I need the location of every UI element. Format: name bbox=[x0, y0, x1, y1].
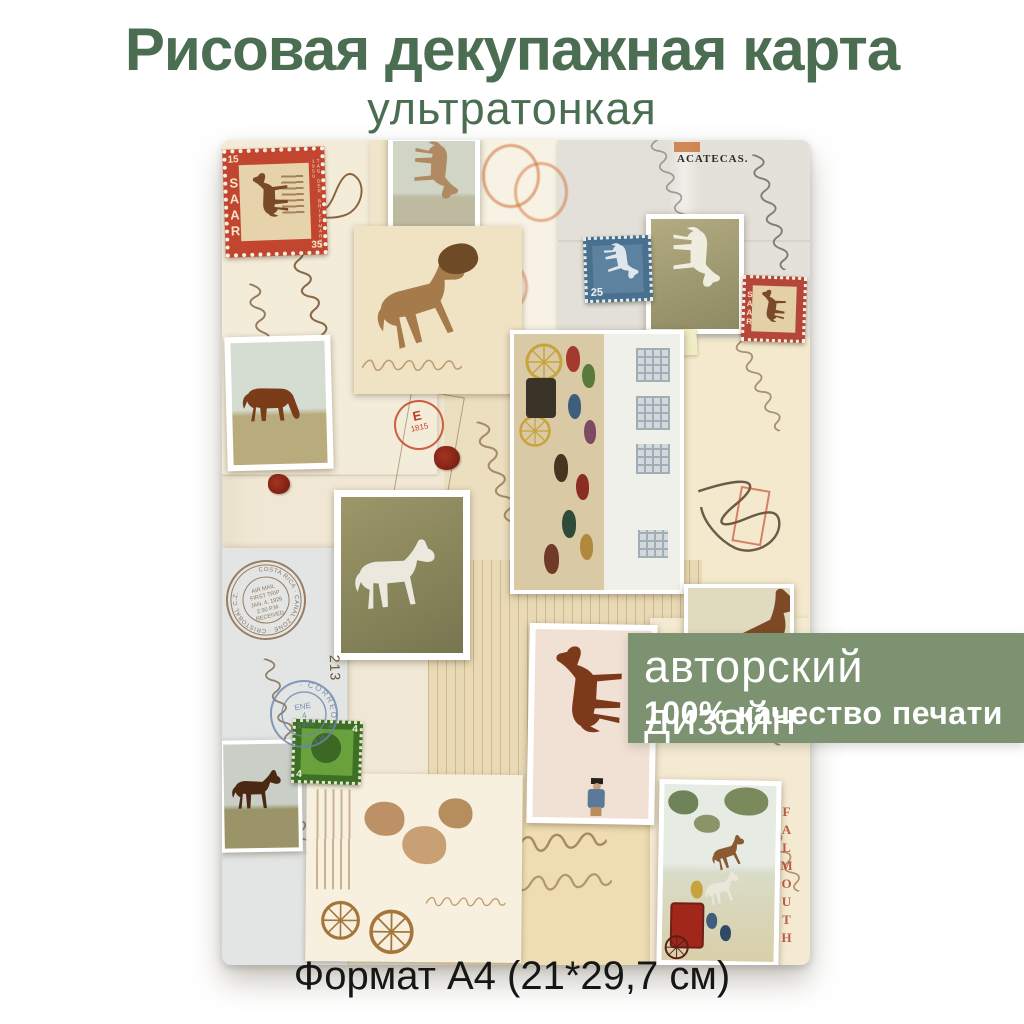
horse-icon bbox=[552, 629, 630, 738]
card-picture bbox=[223, 743, 299, 848]
promo-banner: авторский дизайн 100% качество печати bbox=[628, 633, 1024, 743]
stamp-value: 4 bbox=[352, 724, 358, 735]
wheel-icon bbox=[367, 908, 415, 956]
format-caption: Формат А4 (21*29,7 см) bbox=[0, 956, 1024, 996]
crowd-figure bbox=[544, 544, 559, 574]
stamp-value-left: 15 bbox=[227, 154, 239, 165]
stamp-value-2: 4 bbox=[296, 769, 302, 780]
building-window bbox=[636, 348, 670, 382]
saar-stamp: SAAR 15 35 TAG DER BRIEFMARKE 1950 bbox=[222, 146, 328, 257]
card-picture bbox=[393, 141, 475, 235]
horse-icon bbox=[700, 868, 752, 909]
horse-icon bbox=[759, 282, 790, 325]
horse-icon bbox=[670, 224, 721, 300]
crowd-figure bbox=[566, 346, 580, 372]
card-picture bbox=[230, 341, 327, 465]
handwritten-number: 213 bbox=[327, 655, 344, 682]
decoupage-sheet: ACATECAS. E 1815 bbox=[222, 140, 810, 965]
tree bbox=[694, 815, 720, 833]
svg-text:· CORREO AEREO ·: · CORREO AEREO · bbox=[281, 675, 343, 751]
sketch-lines bbox=[316, 789, 353, 889]
horse-icon bbox=[706, 831, 759, 875]
sepia-rider-drawing bbox=[354, 226, 522, 394]
wheel-icon bbox=[319, 899, 361, 941]
white-horse-card bbox=[646, 214, 744, 334]
horse-icon bbox=[600, 238, 641, 292]
sketch-squiggle bbox=[362, 356, 462, 376]
blue-stamp: 25 bbox=[583, 235, 653, 303]
grey-horse-card bbox=[334, 490, 470, 660]
tree bbox=[668, 790, 698, 815]
tree bbox=[724, 787, 768, 816]
card-picture bbox=[651, 219, 739, 329]
card-picture bbox=[661, 784, 776, 962]
page-title: Рисовая декупажная карта bbox=[0, 20, 1024, 80]
crowd-figure bbox=[554, 454, 568, 482]
horse-icon bbox=[360, 243, 503, 360]
horse-grazing-icon bbox=[239, 373, 320, 428]
horse-icon bbox=[410, 141, 460, 212]
wheel-icon bbox=[518, 414, 552, 448]
horse-icon bbox=[230, 769, 293, 811]
stamp-fragment bbox=[674, 142, 700, 152]
building-window bbox=[636, 396, 670, 430]
banner-line-2: 100% качество печати bbox=[644, 695, 1003, 732]
horse-icon bbox=[348, 536, 459, 616]
postilion-figure bbox=[691, 881, 703, 899]
card-picture bbox=[341, 497, 463, 653]
groom-coat bbox=[588, 789, 605, 808]
sketch-figure bbox=[438, 798, 472, 828]
wax-seal bbox=[268, 474, 290, 494]
sketch-figure bbox=[402, 826, 446, 864]
orange-postmark bbox=[514, 162, 568, 222]
product-image: Рисовая декупажная карта ультратонкая AC… bbox=[0, 0, 1024, 1024]
saar-stamp-small: SAAR bbox=[741, 275, 807, 343]
sketch-squiggle bbox=[426, 894, 506, 911]
sepia-cart-sketch bbox=[305, 773, 523, 963]
postmark-ring-text: · CORREO AEREO · bbox=[281, 675, 343, 751]
groom-legs bbox=[590, 807, 601, 816]
appaloosa-horse-card bbox=[388, 140, 480, 240]
building-window bbox=[636, 444, 670, 474]
coach-body bbox=[526, 378, 556, 418]
card-picture bbox=[514, 334, 680, 590]
building-window bbox=[638, 530, 668, 558]
wax-seal bbox=[434, 446, 460, 470]
crowd-figure bbox=[576, 474, 589, 500]
envelope-printed-text: ACATECAS. bbox=[677, 153, 748, 165]
stamp-picture bbox=[239, 163, 312, 241]
bay-horse-card bbox=[224, 335, 333, 472]
stamp-country: SAAR bbox=[744, 290, 754, 326]
stamp-edge-text: TAG DER BRIEFMARKE 1950 bbox=[311, 158, 324, 250]
crowd-figure bbox=[568, 394, 581, 419]
passenger-figure bbox=[720, 925, 731, 941]
mail-coach-card bbox=[656, 779, 781, 965]
stamp-picture bbox=[751, 285, 797, 333]
page-subtitle: ультратонкая bbox=[0, 86, 1024, 131]
correo-aereo-postmark: · CORREO AEREO · ENE 4 1920 bbox=[262, 672, 345, 755]
passenger-figure bbox=[706, 913, 717, 929]
wheel-icon bbox=[524, 342, 564, 382]
crowd-figure bbox=[584, 420, 596, 444]
stamp-value: 25 bbox=[591, 287, 604, 299]
stamp-country: SAAR bbox=[226, 175, 243, 239]
crowd-figure bbox=[562, 510, 576, 538]
coach-street-scene-card bbox=[510, 330, 684, 594]
crowd-figure bbox=[580, 534, 593, 560]
postmark-line: 1920 bbox=[296, 718, 316, 730]
crowd-figure bbox=[582, 364, 595, 388]
sketch-figure bbox=[364, 802, 404, 836]
coach-sketch-lines bbox=[281, 173, 304, 214]
